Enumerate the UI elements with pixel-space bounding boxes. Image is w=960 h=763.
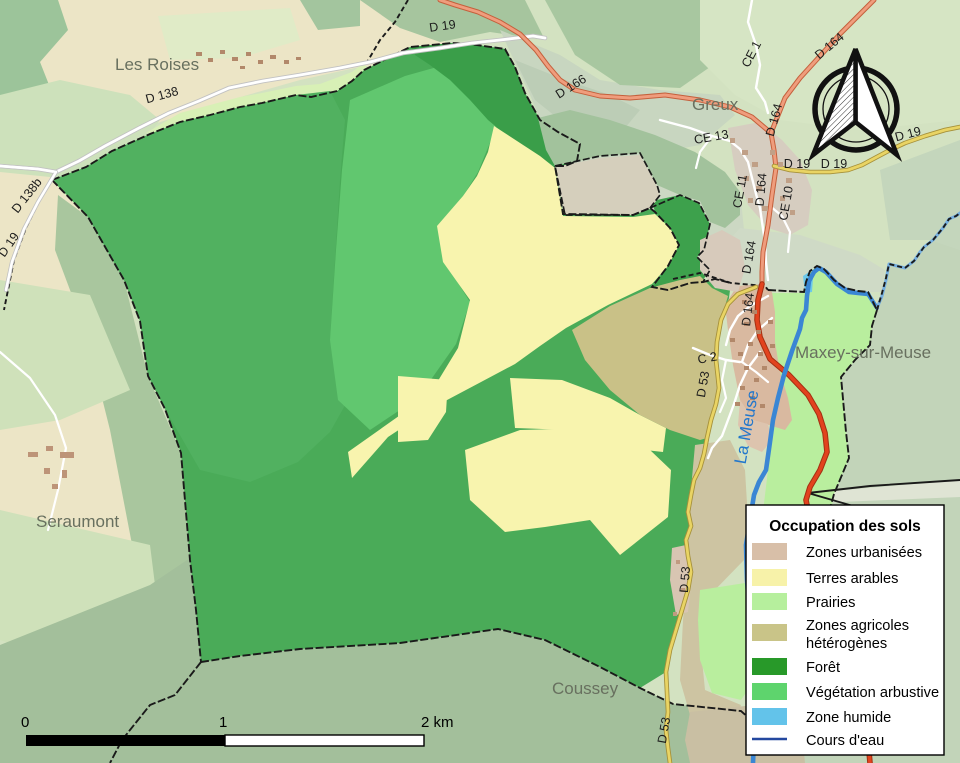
svg-text:D 19: D 19 [784,157,810,171]
svg-text:1: 1 [219,714,227,731]
svg-text:hétérogènes: hétérogènes [806,636,887,652]
svg-text:Seraumont: Seraumont [36,512,119,531]
svg-text:Zone humide: Zone humide [806,710,891,726]
svg-text:D 164: D 164 [753,172,770,206]
svg-text:Zones agricoles: Zones agricoles [806,618,909,634]
svg-text:Occupation des sols: Occupation des sols [769,518,921,535]
svg-text:2 km: 2 km [421,714,454,731]
svg-text:Maxey-sur-Meuse: Maxey-sur-Meuse [795,343,931,362]
svg-text:Cours d'eau: Cours d'eau [806,733,884,749]
svg-text:Coussey: Coussey [552,679,619,698]
svg-text:Les Roises: Les Roises [115,55,199,74]
svg-text:Forêt: Forêt [806,660,840,676]
svg-text:Terres arables: Terres arables [806,571,898,587]
svg-text:Zones urbanisées: Zones urbanisées [806,545,922,561]
svg-text:0: 0 [21,714,29,731]
svg-text:Greux: Greux [692,95,739,114]
svg-text:D 53: D 53 [677,566,693,594]
svg-text:Prairies: Prairies [806,595,855,611]
svg-text:Végétation arbustive: Végétation arbustive [806,685,939,701]
svg-text:D 19: D 19 [821,157,847,171]
